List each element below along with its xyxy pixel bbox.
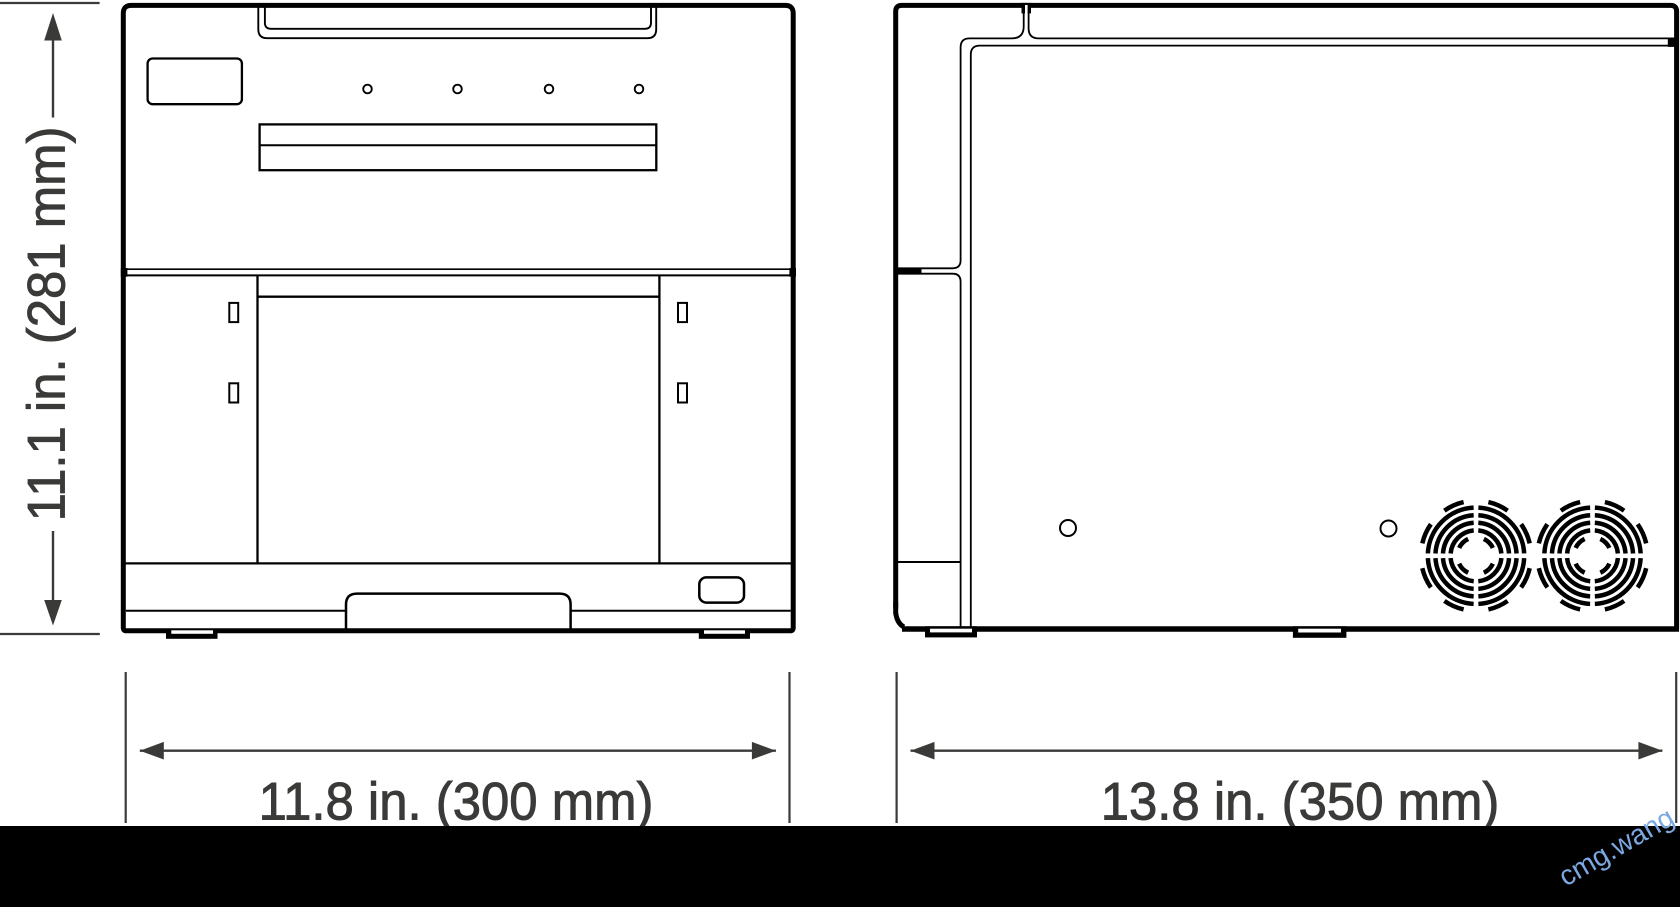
svg-text:11.1 in. (281 mm): 11.1 in. (281 mm) (18, 127, 77, 522)
svg-text:13.8 in. (350 mm): 13.8 in. (350 mm) (1101, 773, 1500, 832)
svg-text:11.8 in. (300 mm): 11.8 in. (300 mm) (259, 773, 654, 832)
